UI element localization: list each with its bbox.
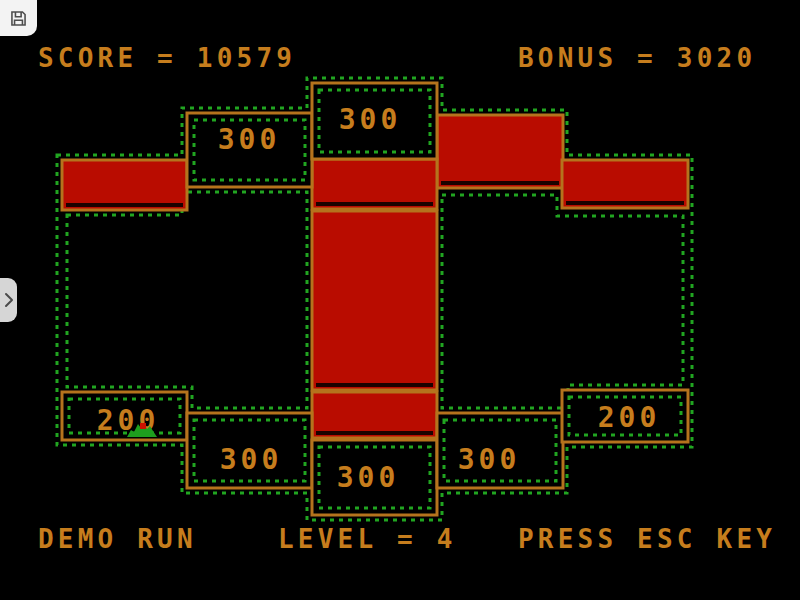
red-block-center-upper <box>312 159 437 209</box>
score-zone-bottom-far-right: 200 <box>562 390 688 442</box>
score-zone-top-left: 300 <box>187 113 312 187</box>
right-cavity-track-outline <box>442 195 683 408</box>
zone-value: 300 <box>458 443 521 476</box>
score-zone-bottom-far-left: 200 <box>62 392 187 440</box>
left-cavity-track-outline <box>67 192 307 408</box>
game-screen: SCORE = 10579 BONUS = 3020 DEMO RUN LEVE… <box>0 0 800 600</box>
red-block-top-left <box>62 160 187 210</box>
save-button[interactable] <box>0 0 37 36</box>
zone-value: 300 <box>218 123 281 156</box>
score-zone-bottom-center: 300 <box>312 440 437 515</box>
score-zone-top-center: 300 <box>312 83 437 159</box>
red-block-center-tall <box>312 211 437 390</box>
zone-value: 300 <box>337 461 400 494</box>
floppy-disk-icon <box>8 8 29 29</box>
game-board: 300 300 200 300 300 300 <box>0 0 800 600</box>
zone-value: 300 <box>220 443 283 476</box>
red-block-far-right <box>562 160 688 208</box>
chevron-right-icon <box>3 290 15 310</box>
red-block-top-right <box>437 115 563 188</box>
score-zone-bottom-right: 300 <box>437 413 563 488</box>
score-zone-bottom-left: 300 <box>187 413 312 488</box>
zone-value: 200 <box>598 401 661 434</box>
zone-value: 300 <box>339 103 402 136</box>
sidebar-toggle-button[interactable] <box>0 278 17 322</box>
red-block-center-lower <box>312 392 437 438</box>
